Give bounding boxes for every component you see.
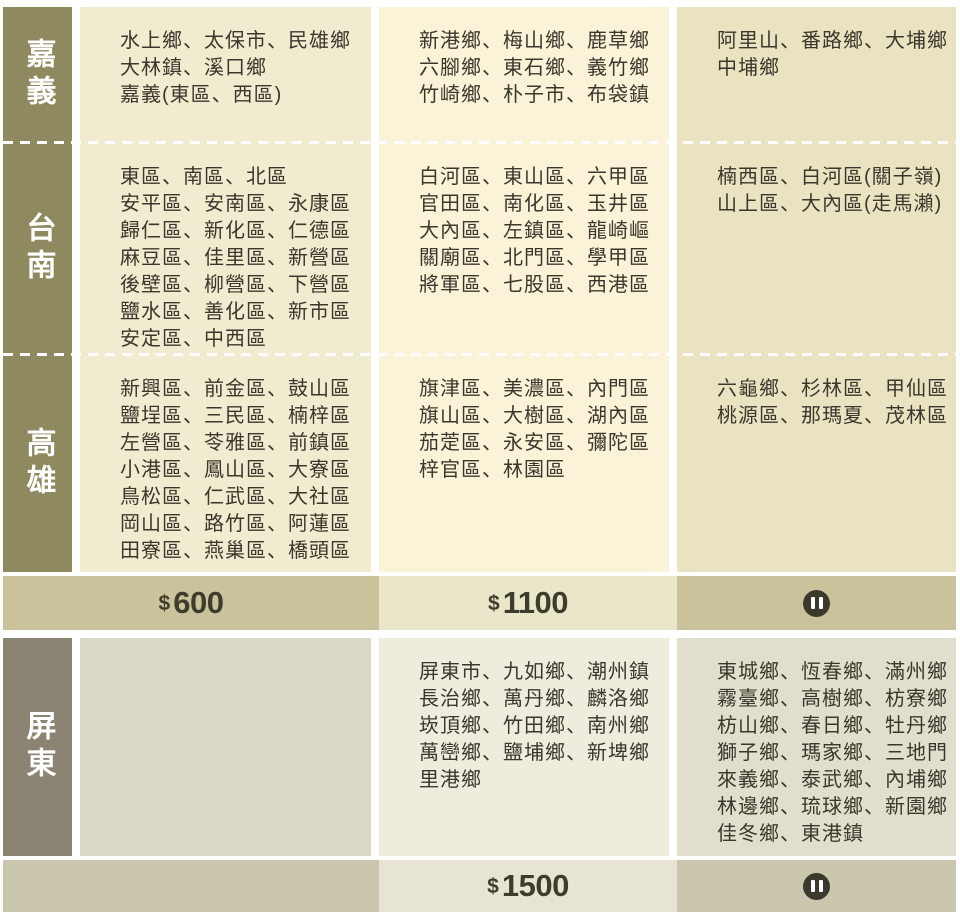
price-cell-zone2: $ 1500 [379, 860, 677, 912]
district-line: 阿里山、番路鄉、大埔鄉 [717, 28, 950, 55]
districts-cell: 白河區、東山區、六甲區官田區、南化區、玉井區大內區、左鎮區、龍崎嶇關廟區、北門區… [379, 143, 669, 355]
pause-icon [803, 590, 830, 617]
region-row-kaohsiung: 高雄 新興區、前金區、鼓山區鹽埕區、三民區、楠梓區左營區、苓雅區、前鎮區小港區、… [3, 355, 956, 572]
district-line: 崁頂鄉、竹田鄉、南州鄉 [419, 713, 663, 740]
district-line: 歸仁區、新化區、仁德區 [120, 218, 365, 245]
district-line: 岡山區、路竹區、阿蓮區 [120, 511, 365, 538]
pause-icon [803, 873, 830, 900]
district-line: 屏東市、九如鄉、潮州鎮 [419, 659, 663, 686]
price-amount: 600 [173, 585, 223, 621]
price-row-main: $ 600 $ 1100 [3, 576, 956, 630]
district-line: 安平區、安南區、永康區 [120, 191, 365, 218]
district-line: 茄萣區、永安區、彌陀區 [419, 430, 663, 457]
district-line: 竹崎鄉、朴子市、布袋鎮 [419, 82, 663, 109]
districts-cell: 水上鄉、太保市、民雄鄉大林鎮、溪口鄉嘉義(東區、西區) [80, 7, 371, 143]
district-line: 白河區、東山區、六甲區 [419, 164, 663, 191]
section-pingtung: 屏東 屏東市、九如鄉、潮州鎮長治鄉、萬丹鄉、麟洛鄉崁頂鄉、竹田鄉、南州鄉萬巒鄉、… [3, 638, 956, 912]
district-line: 六龜鄉、杉林區、甲仙區 [717, 376, 950, 403]
region-name: 台南 [23, 212, 53, 286]
district-line: 東城鄉、恆春鄉、滿州鄉 [717, 659, 950, 686]
district-line: 大林鎮、溪口鄉 [120, 55, 365, 82]
district-line: 長治鄉、萬丹鄉、麟洛鄉 [419, 686, 663, 713]
dashed-separator [3, 141, 956, 144]
region-label-chiayi: 嘉義 [3, 7, 72, 143]
district-line: 里港鄉 [419, 767, 663, 794]
currency-symbol: $ [488, 592, 500, 616]
district-line: 東區、南區、北區 [120, 164, 365, 191]
price-amount: 1100 [503, 585, 568, 621]
district-line: 將軍區、七股區、西港區 [419, 272, 663, 299]
price-cell-zone2: $ 1100 [379, 576, 677, 630]
currency-symbol: $ [159, 592, 171, 616]
district-line: 鹽埕區、三民區、楠梓區 [120, 403, 365, 430]
pause-bar [811, 880, 815, 892]
dashed-separator [3, 353, 956, 356]
region-row-chiayi: 嘉義 水上鄉、太保市、民雄鄉大林鎮、溪口鄉嘉義(東區、西區) 新港鄉、梅山鄉、鹿… [3, 7, 956, 143]
region-row-tainan: 台南 東區、南區、北區安平區、安南區、永康區歸仁區、新化區、仁德區麻豆區、佳里區… [3, 143, 956, 355]
district-line: 新港鄉、梅山鄉、鹿草鄉 [419, 28, 663, 55]
price-cell-zone1: $ 600 [3, 576, 379, 630]
district-line: 鳥松區、仁武區、大社區 [120, 484, 365, 511]
district-line: 麻豆區、佳里區、新營區 [120, 245, 365, 272]
district-line: 枋山鄉、春日鄉、牡丹鄉 [717, 713, 950, 740]
district-line: 佳冬鄉、東港鎮 [717, 821, 950, 848]
region-name: 嘉義 [23, 38, 53, 112]
district-line: 旗山區、大樹區、湖內區 [419, 403, 663, 430]
pause-bar [819, 880, 823, 892]
district-line: 霧臺鄉、高樹鄉、枋寮鄉 [717, 686, 950, 713]
district-line: 楠西區、白河區(關子嶺) [717, 164, 950, 191]
districts-cell: 阿里山、番路鄉、大埔鄉中埔鄉 [677, 7, 956, 143]
district-line: 桃源區、那瑪夏、茂林區 [717, 403, 950, 430]
price-row-pingtung: $ 1500 [3, 860, 956, 912]
districts-cell: 六龜鄉、杉林區、甲仙區桃源區、那瑪夏、茂林區 [677, 355, 956, 572]
price-cell-zone3-paused [677, 576, 956, 630]
district-line: 田寮區、燕巢區、橋頭區 [120, 538, 365, 565]
district-line: 小港區、鳳山區、大寮區 [120, 457, 365, 484]
district-line: 安定區、中西區 [120, 326, 365, 353]
region-label-kaohsiung: 高雄 [3, 355, 72, 572]
region-row-pingtung: 屏東 屏東市、九如鄉、潮州鎮長治鄉、萬丹鄉、麟洛鄉崁頂鄉、竹田鄉、南州鄉萬巒鄉、… [3, 638, 956, 856]
districts-cell: 楠西區、白河區(關子嶺)山上區、大內區(走馬瀨) [677, 143, 956, 355]
shipping-fee-table: 嘉義 水上鄉、太保市、民雄鄉大林鎮、溪口鄉嘉義(東區、西區) 新港鄉、梅山鄉、鹿… [0, 0, 960, 912]
district-line: 山上區、大內區(走馬瀨) [717, 191, 950, 218]
districts-cell: 東城鄉、恆春鄉、滿州鄉霧臺鄉、高樹鄉、枋寮鄉枋山鄉、春日鄉、牡丹鄉獅子鄉、瑪家鄉… [677, 638, 956, 856]
districts-cell: 新港鄉、梅山鄉、鹿草鄉六腳鄉、東石鄉、義竹鄉竹崎鄉、朴子市、布袋鎮 [379, 7, 669, 143]
district-line: 林邊鄉、琉球鄉、新園鄉 [717, 794, 950, 821]
districts-cell: 屏東市、九如鄉、潮州鎮長治鄉、萬丹鄉、麟洛鄉崁頂鄉、竹田鄉、南州鄉萬巒鄉、鹽埔鄉… [379, 638, 669, 856]
district-line: 獅子鄉、瑪家鄉、三地門 [717, 740, 950, 767]
district-line: 六腳鄉、東石鄉、義竹鄉 [419, 55, 663, 82]
pause-bar [811, 597, 815, 609]
section-main: 嘉義 水上鄉、太保市、民雄鄉大林鎮、溪口鄉嘉義(東區、西區) 新港鄉、梅山鄉、鹿… [3, 7, 956, 630]
district-line: 官田區、南化區、玉井區 [419, 191, 663, 218]
district-line: 嘉義(東區、西區) [120, 82, 365, 109]
district-line: 左營區、苓雅區、前鎮區 [120, 430, 365, 457]
district-line: 水上鄉、太保市、民雄鄉 [120, 28, 365, 55]
districts-cell: 新興區、前金區、鼓山區鹽埕區、三民區、楠梓區左營區、苓雅區、前鎮區小港區、鳳山區… [80, 355, 371, 572]
districts-cell: 旗津區、美濃區、內門區旗山區、大樹區、湖內區茄萣區、永安區、彌陀區梓官區、林園區 [379, 355, 669, 572]
district-line: 旗津區、美濃區、內門區 [419, 376, 663, 403]
district-line: 鹽水區、善化區、新市區 [120, 299, 365, 326]
price-cell-zone3-paused [677, 860, 956, 912]
price-cell-empty [3, 860, 379, 912]
region-name: 高雄 [23, 427, 53, 501]
district-line: 萬巒鄉、鹽埔鄉、新埤鄉 [419, 740, 663, 767]
region-label-tainan: 台南 [3, 143, 72, 355]
price-amount: 1500 [502, 868, 569, 904]
section-gap [3, 630, 956, 638]
districts-cell-empty [80, 638, 371, 856]
region-name: 屏東 [23, 710, 53, 784]
region-label-pingtung: 屏東 [3, 638, 72, 856]
districts-cell: 東區、南區、北區安平區、安南區、永康區歸仁區、新化區、仁德區麻豆區、佳里區、新營… [80, 143, 371, 355]
district-line: 來義鄉、泰武鄉、內埔鄉 [717, 767, 950, 794]
pause-bar [819, 597, 823, 609]
district-line: 中埔鄉 [717, 55, 950, 82]
currency-symbol: $ [487, 875, 499, 899]
district-line: 大內區、左鎮區、龍崎嶇 [419, 218, 663, 245]
district-line: 梓官區、林園區 [419, 457, 663, 484]
district-line: 關廟區、北門區、學甲區 [419, 245, 663, 272]
district-line: 新興區、前金區、鼓山區 [120, 376, 365, 403]
district-line: 後壁區、柳營區、下營區 [120, 272, 365, 299]
